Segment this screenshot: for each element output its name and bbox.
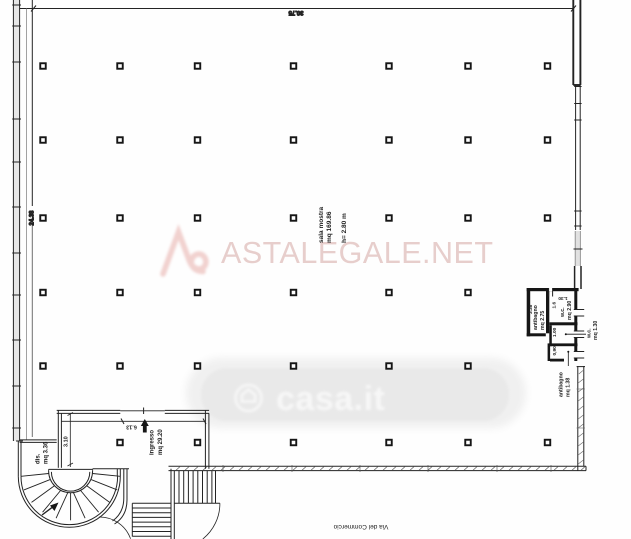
svg-text:w.c.: w.c. — [560, 307, 566, 318]
svg-text:1.30: 1.30 — [558, 295, 568, 301]
svg-text:mq 1.30: mq 1.30 — [593, 321, 599, 340]
svg-text:mq 2.90: mq 2.90 — [567, 301, 573, 320]
svg-text:mq 3.36: mq 3.36 — [44, 441, 50, 464]
svg-text:0,90: 0,90 — [552, 346, 558, 356]
svg-text:dis.: dis. — [36, 453, 42, 464]
svg-text:ingresso: ingresso — [150, 430, 156, 455]
svg-text:casa.it: casa.it — [276, 380, 385, 418]
svg-text:1.00: 1.00 — [552, 327, 558, 337]
svg-text:mq 1.38: mq 1.38 — [566, 378, 572, 397]
svg-text:3.38: 3.38 — [528, 304, 534, 314]
svg-text:Via del Commercio: Via del Commercio — [333, 523, 388, 530]
svg-text:6.13: 6.13 — [126, 423, 137, 429]
svg-text:antibagno: antibagno — [559, 372, 565, 397]
svg-text:30.75: 30.75 — [288, 9, 304, 15]
svg-text:1.6: 1.6 — [552, 301, 558, 308]
svg-text:ASTALEGALE.NET: ASTALEGALE.NET — [221, 236, 494, 270]
svg-text:w.c.: w.c. — [587, 328, 593, 339]
svg-text:mq 2.75: mq 2.75 — [540, 311, 546, 330]
svg-text:sala mostra: sala mostra — [318, 206, 325, 243]
svg-text:h= 2.80 m: h= 2.80 m — [341, 213, 348, 243]
svg-text:3.10: 3.10 — [64, 436, 70, 447]
svg-text:24.38: 24.38 — [30, 210, 36, 226]
svg-text:mq 169.86: mq 169.86 — [326, 211, 333, 243]
svg-text:mq 29.20: mq 29.20 — [158, 429, 164, 455]
